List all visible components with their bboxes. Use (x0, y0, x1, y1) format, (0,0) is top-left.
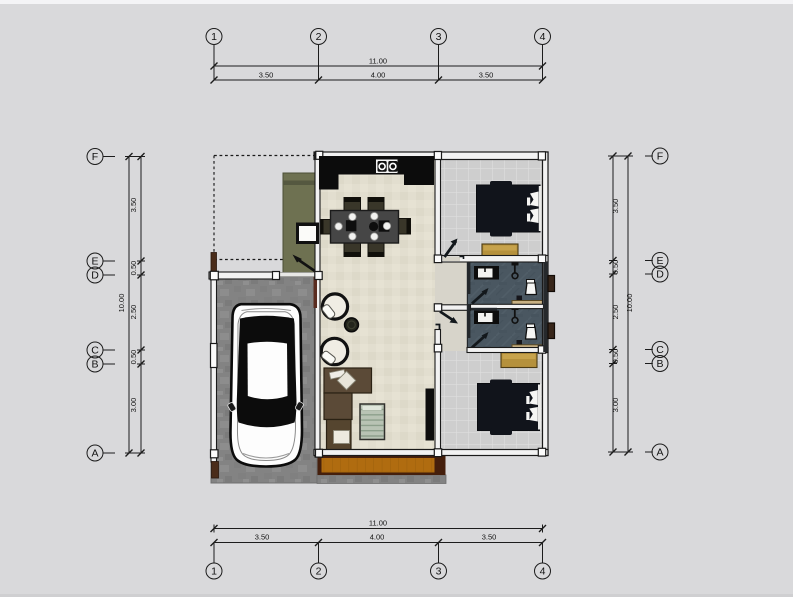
svg-text:3.50: 3.50 (255, 533, 270, 542)
svg-text:10.00: 10.00 (117, 294, 126, 313)
svg-text:0.50: 0.50 (129, 350, 138, 365)
svg-text:2.50: 2.50 (129, 305, 138, 320)
svg-text:11.00: 11.00 (369, 519, 387, 528)
svg-text:0.50: 0.50 (611, 349, 620, 364)
svg-text:3: 3 (436, 566, 442, 578)
svg-text:E: E (656, 255, 663, 267)
svg-text:C: C (656, 344, 664, 356)
svg-text:4.00: 4.00 (371, 71, 386, 80)
svg-text:3.50: 3.50 (259, 71, 274, 80)
svg-text:A: A (656, 447, 663, 459)
svg-text:3.00: 3.00 (611, 398, 620, 413)
svg-text:3: 3 (436, 31, 442, 43)
svg-text:0.50: 0.50 (611, 260, 620, 275)
svg-text:3.50: 3.50 (482, 533, 497, 542)
svg-text:C: C (91, 345, 99, 357)
svg-text:4.00: 4.00 (370, 533, 385, 542)
svg-text:B: B (91, 359, 98, 371)
svg-text:10.00: 10.00 (625, 294, 634, 313)
svg-text:3.50: 3.50 (479, 71, 494, 80)
svg-text:4: 4 (540, 566, 546, 578)
svg-text:3.50: 3.50 (129, 198, 138, 213)
svg-text:A: A (91, 448, 98, 460)
svg-text:B: B (656, 358, 663, 370)
svg-text:3.50: 3.50 (611, 199, 620, 214)
svg-text:1: 1 (211, 566, 217, 578)
svg-text:3.00: 3.00 (129, 398, 138, 413)
svg-text:1: 1 (211, 31, 217, 43)
svg-text:D: D (91, 270, 99, 282)
svg-text:2.50: 2.50 (611, 305, 620, 320)
svg-text:0.50: 0.50 (129, 261, 138, 276)
svg-text:2: 2 (316, 566, 322, 578)
svg-text:D: D (656, 269, 664, 281)
svg-text:4: 4 (540, 31, 546, 43)
svg-text:2: 2 (316, 31, 322, 43)
svg-text:11.00: 11.00 (369, 57, 387, 66)
svg-text:F: F (92, 151, 98, 163)
svg-text:F: F (657, 151, 663, 163)
svg-text:E: E (91, 256, 98, 268)
